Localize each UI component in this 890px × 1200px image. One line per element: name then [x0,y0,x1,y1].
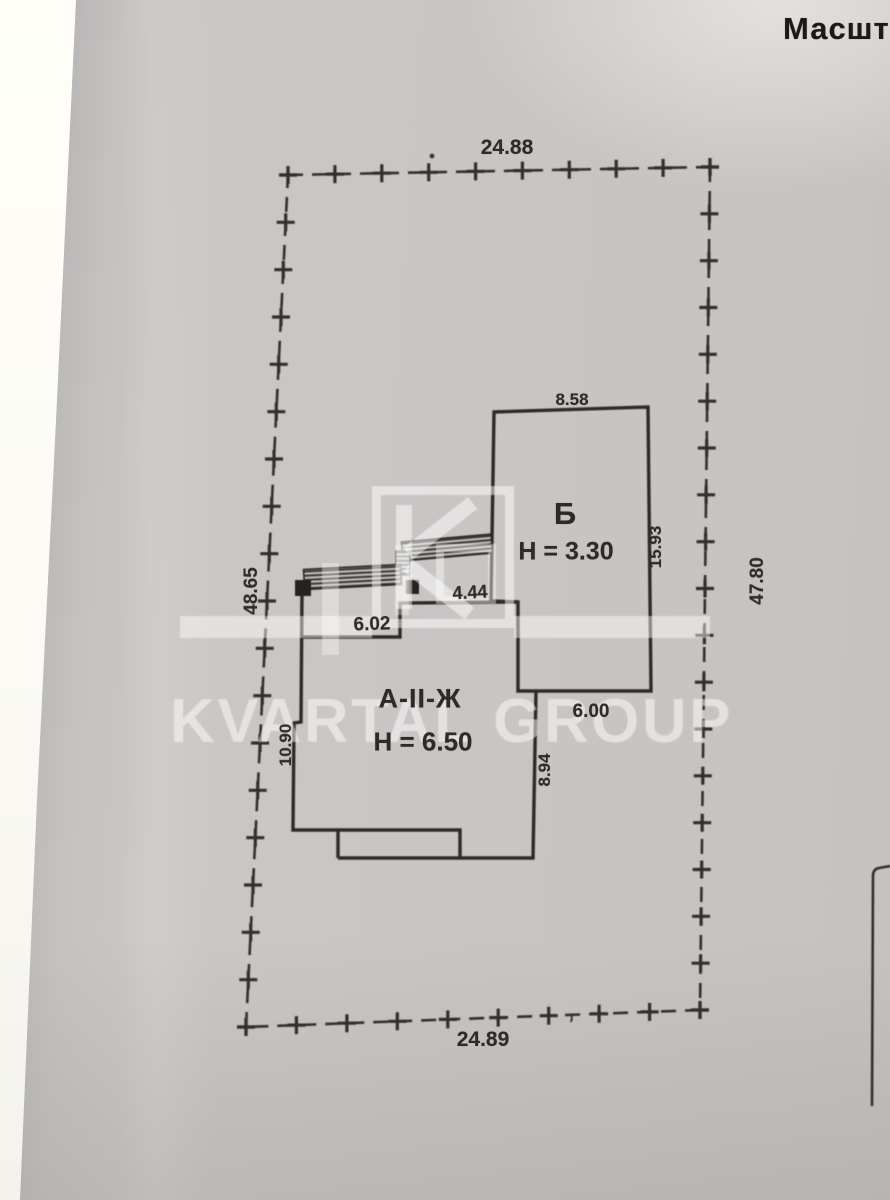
building-b-label: Б [554,496,576,532]
watermark-logo-k-stem [396,505,412,609]
dim-site-bottom: 24.89 [457,1028,510,1052]
dim-building-b-bottom: 6.00 [573,701,610,723]
dim-building-a-top-left: 6.02 [353,613,391,636]
scan-speck [570,1014,572,1022]
dim-site-right: 47.80 [747,557,769,605]
dim-building-a-left: 10.90 [276,724,296,767]
building-b-height: Н = 3.30 [518,538,613,567]
adjacent-frame-fragment [872,866,890,1106]
watermark-band-left [180,616,372,638]
dim-building-b-right: 15.93 [646,526,666,569]
dim-building-a-right: 8.94 [535,753,555,786]
building-a-height: Н = 6.50 [373,727,472,758]
watermark-band-right [514,616,710,638]
scan-speck [430,154,435,159]
dim-site-left: 48.65 [241,567,263,615]
building-a-label: А-II-Ж [379,684,462,715]
dim-building-a-top-inner: 4.44 [452,582,488,605]
scanned-site-plan-photo: KVARTAL GROUP 24.88 24.89 48.65 47.80 8.… [0,0,890,1200]
stair-post-left [295,580,311,596]
dim-building-b-top: 8.58 [555,390,588,410]
watermark-strip [322,563,339,655]
scale-label: Масшта [783,11,890,47]
dim-site-top: 24.88 [481,136,534,160]
